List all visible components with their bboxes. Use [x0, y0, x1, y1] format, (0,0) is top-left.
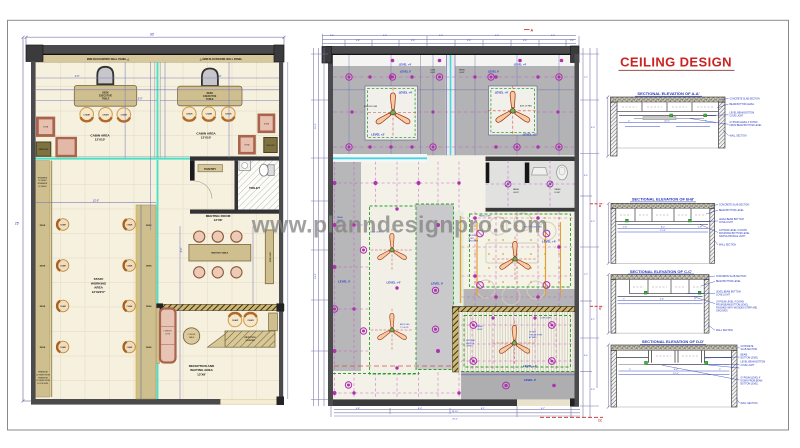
- svg-text:CHAIR: CHAIR: [225, 113, 232, 116]
- svg-text:LEVEL BEAM BOTTOM: LEVEL BEAM BOTTOM: [719, 218, 744, 221]
- svg-text:LEVEL 0': LEVEL 0': [488, 70, 499, 74]
- svg-text:GROOVES: GROOVES: [469, 241, 479, 243]
- svg-text:LIGHT: LIGHT: [555, 192, 562, 194]
- svg-text:LIGHT: LIGHT: [466, 346, 472, 348]
- svg-text:4'-6": 4'-6": [660, 299, 665, 301]
- svg-text:RECEPTION: RECEPTION: [244, 337, 256, 339]
- svg-text:CHAIR: CHAIR: [60, 305, 66, 308]
- svg-text:LEVEL +4': LEVEL +4': [542, 239, 556, 243]
- svg-text:LIGHT: LIGHT: [477, 329, 483, 331]
- svg-text:CHAIR: CHAIR: [60, 346, 66, 349]
- svg-text:12'X10': 12'X10': [201, 136, 212, 140]
- svg-text:12'-0": 12'-0": [673, 373, 679, 375]
- svg-text:3'-7": 3'-7": [591, 319, 596, 321]
- svg-text:BRACKET FAN: BRACKET FAN: [364, 105, 378, 108]
- svg-text:LIGHT: LIGHT: [469, 238, 475, 240]
- svg-text:10'-0": 10'-0": [315, 123, 317, 129]
- svg-text:SIDE UNIT: SIDE UNIT: [270, 251, 272, 262]
- svg-text:SECTIONAL ELEVATION OF D-D': SECTIONAL ELEVATION OF D-D': [642, 339, 704, 344]
- svg-text:CHAIR: CHAIR: [60, 264, 66, 267]
- svg-text:1'-8": 1'-8": [698, 227, 703, 229]
- svg-text:COVE LIGHT: COVE LIGHT: [741, 365, 756, 367]
- svg-text:ARCH LED: ARCH LED: [400, 323, 410, 326]
- svg-text:10' HEIGHT: 10' HEIGHT: [38, 180, 47, 182]
- svg-text:CONCRETE: CONCRETE: [741, 346, 754, 348]
- svg-text:DESK: DESK: [146, 347, 152, 349]
- svg-text:30': 30': [150, 33, 155, 37]
- svg-text:PANEL: PANEL: [513, 188, 520, 191]
- svg-text:SOFA: SOFA: [244, 144, 250, 147]
- svg-text:COVE LIGHT: COVE LIGHT: [730, 116, 745, 118]
- svg-text:BOTTOM LEVEL: BOTTOM LEVEL: [741, 357, 759, 359]
- svg-text:EXECUTIVE: EXECUTIVE: [99, 96, 112, 98]
- svg-text:3'-4": 3'-4": [584, 355, 589, 357]
- svg-text:DESK: DESK: [40, 347, 46, 349]
- svg-text:BOTTOM LEVEL: BOTTOM LEVEL: [741, 383, 759, 385]
- svg-text:TABLE: TABLE: [102, 98, 110, 101]
- svg-text:BEAM: BEAM: [741, 353, 748, 356]
- svg-text:LIGHT: LIGHT: [430, 72, 436, 74]
- svg-text:2'-6": 2'-6": [330, 35, 335, 37]
- svg-text:PROFILE: PROFILE: [466, 343, 475, 345]
- svg-text:7'-7": 7'-7": [584, 274, 589, 276]
- svg-text:www.planndesignpro.com: www.planndesignpro.com: [251, 212, 548, 238]
- svg-text:BEAM BOTTOM LEVEL: BEAM BOTTOM LEVEL: [730, 103, 755, 106]
- svg-text:5'-2": 5'-2": [591, 221, 596, 223]
- svg-text:FINISHED WITH WOODEN STRIP AND: FINISHED WITH WOODEN STRIP AND: [716, 306, 758, 309]
- svg-text:8'-1": 8'-1": [481, 408, 486, 410]
- svg-text:5'-0": 5'-0": [495, 35, 500, 37]
- svg-text:LIGHT: LIGHT: [513, 192, 520, 194]
- svg-text:4'-8": 4'-8": [356, 408, 361, 410]
- svg-text:PANEL: PANEL: [555, 188, 562, 191]
- svg-text:5'-0": 5'-0": [551, 35, 556, 37]
- svg-text:5'-6": 5'-6": [523, 40, 528, 42]
- svg-text:COVE LIGHT: COVE LIGHT: [540, 318, 552, 320]
- svg-text:PANEL: PANEL: [477, 325, 483, 328]
- svg-text:CHAIR: CHAIR: [127, 223, 133, 226]
- svg-text:22'-0": 22'-0": [664, 121, 670, 123]
- svg-text:LEVEL 0': LEVEL 0': [338, 279, 351, 283]
- svg-text:VERTICAL: VERTICAL: [466, 339, 475, 342]
- svg-text:4'-0": 4'-0": [591, 127, 596, 129]
- svg-text:HAVING PROFILE LIGHT: HAVING PROFILE LIGHT: [719, 235, 746, 238]
- svg-text:DOWN FROM BEAM: DOWN FROM BEAM: [741, 379, 763, 382]
- svg-text:CEILING DESIGN: CEILING DESIGN: [620, 55, 732, 70]
- svg-text:CHAIR: CHAIR: [102, 113, 109, 116]
- svg-text:WALL SECTION: WALL SECTION: [716, 329, 733, 332]
- svg-text:LEVEL +2': LEVEL +2': [371, 133, 385, 137]
- svg-text:T COLOR: T COLOR: [400, 327, 409, 329]
- svg-text:EXECUTIVE: EXECUTIVE: [203, 96, 216, 98]
- svg-text:CHAIR: CHAIR: [127, 305, 133, 308]
- svg-text:GYPSUM LEVEL 4' DOWN: GYPSUM LEVEL 4' DOWN: [716, 301, 744, 303]
- svg-text:B': B': [599, 307, 602, 311]
- svg-text:CHAIR: CHAIR: [232, 319, 239, 322]
- svg-text:CHAIR: CHAIR: [206, 113, 213, 116]
- svg-text:10' HEIGHT FROM: 10' HEIGHT FROM: [36, 380, 50, 382]
- svg-text:A: A: [531, 28, 534, 32]
- svg-text:CHAIR: CHAIR: [186, 113, 193, 116]
- svg-text:SLAB SECTION: SLAB SECTION: [741, 348, 758, 351]
- svg-text:BEAM BOTTOM LEVEL: BEAM BOTTOM LEVEL: [716, 280, 741, 283]
- svg-text:CONCRETE SLAB SECTION: CONCRETE SLAB SECTION: [730, 97, 761, 100]
- svg-text:6'-7": 6'-7": [541, 408, 546, 410]
- svg-text:GYPSUM LEVEL 4' DOWN: GYPSUM LEVEL 4' DOWN: [730, 122, 758, 124]
- svg-text:AXIS CE FAN: AXIS CE FAN: [520, 105, 532, 108]
- svg-text:CHAIR: CHAIR: [247, 319, 254, 322]
- svg-text:SOFA: SOFA: [165, 332, 171, 335]
- svg-text:LIGHT: LIGHT: [459, 72, 465, 74]
- svg-text:SIDE UNIT: SIDE UNIT: [266, 145, 274, 147]
- svg-text:LEVEL +2': LEVEL +2': [523, 133, 537, 137]
- svg-text:14'-6": 14'-6": [315, 273, 317, 279]
- svg-text:LEVEL +4': LEVEL +4': [399, 63, 412, 67]
- svg-text:SECTIONAL ELEVATION OF B-B': SECTIONAL ELEVATION OF B-B': [632, 197, 694, 202]
- svg-text:BEAM BOTTOM LEVEL: BEAM BOTTOM LEVEL: [719, 209, 744, 212]
- svg-text:LEVEL +4': LEVEL +4': [495, 90, 509, 94]
- svg-text:5'-0": 5'-0": [383, 35, 388, 37]
- svg-text:2'-6": 2'-6": [570, 40, 575, 42]
- svg-text:WALL SECTION: WALL SECTION: [741, 402, 758, 405]
- svg-text:LEVEL 0': LEVEL 0': [431, 281, 444, 285]
- svg-text:3 SEATER: 3 SEATER: [163, 330, 172, 333]
- svg-text:AT WALL: AT WALL: [529, 336, 537, 339]
- svg-text:LEVEL +4': LEVEL +4': [514, 63, 527, 67]
- svg-text:10' HEIGHT FROM: 10' HEIGHT FROM: [36, 374, 50, 376]
- svg-text:LEVEL +4': LEVEL +4': [399, 90, 413, 94]
- svg-text:12'-0": 12'-0": [93, 200, 99, 203]
- svg-text:COVE LIGHT: COVE LIGHT: [719, 222, 734, 224]
- svg-text:FROM BAM BOTTOM LEVEL: FROM BAM BOTTOM LEVEL: [719, 232, 750, 235]
- svg-text:25': 25': [15, 222, 20, 226]
- svg-text:9MM BLOCKWORK WALL PANEL △: 9MM BLOCKWORK WALL PANEL △: [87, 57, 130, 61]
- svg-text:GYPSUM LEVEL 4': GYPSUM LEVEL 4': [741, 377, 762, 379]
- svg-text:DESK: DESK: [40, 225, 46, 227]
- svg-text:THROW STRIP: THROW STRIP: [529, 334, 543, 336]
- svg-text:CONCRETE SLAB SECTION: CONCRETE SLAB SECTION: [719, 204, 750, 207]
- svg-text:LEVEL +4': LEVEL +4': [386, 280, 400, 284]
- svg-text:SOFA: SOFA: [264, 122, 270, 125]
- svg-text:LEVEL +4': LEVEL +4': [523, 364, 537, 368]
- svg-text:12'X10': 12'X10': [95, 138, 106, 142]
- svg-text:UP TAN: UP TAN: [529, 331, 536, 334]
- svg-text:LEVEL 0': LEVEL 0': [524, 378, 537, 382]
- svg-text:CHAIR: CHAIR: [60, 223, 66, 226]
- svg-text:CHAIR: CHAIR: [127, 346, 133, 349]
- svg-text:CHAIR: CHAIR: [127, 264, 133, 267]
- svg-text:11'-6": 11'-6": [660, 230, 666, 232]
- svg-text:CONCRETE SLAB SECTION: CONCRETE SLAB SECTION: [716, 275, 747, 278]
- svg-text:LEVEL BEAM BOTTOM: LEVEL BEAM BOTTOM: [741, 360, 766, 363]
- svg-text:COFFEE: COFFEE: [188, 334, 196, 336]
- svg-text:LEVEL 0': LEVEL 0': [400, 70, 411, 74]
- svg-text:DESK: DESK: [40, 266, 46, 268]
- svg-text:6'-0": 6'-0": [674, 369, 679, 371]
- svg-text:SECTIONAL ELEVATION OF C-C': SECTIONAL ELEVATION OF C-C': [630, 269, 692, 274]
- svg-text:COUNTER: COUNTER: [245, 340, 255, 342]
- svg-text:TABLE: TABLE: [189, 336, 196, 339]
- svg-text:LEVEL BEAM BOTTOM: LEVEL BEAM BOTTOM: [716, 290, 741, 293]
- svg-text:7'-7": 7'-7": [584, 77, 589, 79]
- svg-text:8'-0": 8'-0": [418, 408, 423, 410]
- svg-text:3'-4": 3'-4": [584, 175, 589, 177]
- svg-text:PANTRY: PANTRY: [204, 167, 216, 171]
- svg-text:TOILET: TOILET: [249, 186, 260, 190]
- svg-text:4'-0": 4'-0": [75, 75, 80, 78]
- svg-text:3'-5": 3'-5": [591, 389, 596, 391]
- svg-text:DESK: DESK: [146, 306, 152, 308]
- svg-text:MEETING TABLE: MEETING TABLE: [211, 252, 228, 255]
- svg-text:3'-2": 3'-2": [180, 247, 183, 252]
- svg-text:5'-6": 5'-6": [411, 40, 416, 42]
- svg-text:CHAIR: CHAIR: [121, 114, 128, 117]
- svg-text:DESK: DESK: [207, 93, 214, 95]
- svg-text:5'-6": 5'-6": [467, 40, 472, 42]
- svg-text:10' HEIGHT: 10' HEIGHT: [38, 186, 47, 188]
- svg-text:SOFA: SOFA: [43, 126, 49, 129]
- svg-text:DESK: DESK: [40, 306, 46, 308]
- svg-text:WALL SECTION: WALL SECTION: [719, 244, 736, 247]
- svg-text:12'X23'6": 12'X23'6": [92, 290, 106, 294]
- svg-text:△ 9MM BLOCKWORK WALL PANEL: △ 9MM BLOCKWORK WALL PANEL: [199, 57, 243, 61]
- svg-text:5'-6": 5'-6": [356, 40, 361, 42]
- svg-text:12'X8': 12'X8': [197, 372, 206, 376]
- svg-text:GYPSUM LEVEL 4' DOWN: GYPSUM LEVEL 4' DOWN: [719, 230, 747, 232]
- svg-text:WARDROBE: WARDROBE: [39, 148, 50, 151]
- svg-text:COVE LIGHT: COVE LIGHT: [716, 294, 731, 296]
- svg-text:DESK: DESK: [146, 225, 152, 227]
- svg-text:LEVEL BEAM BOTTOM: LEVEL BEAM BOTTOM: [730, 112, 755, 115]
- svg-text:FROM BEAM BOTTOM LEVEL: FROM BEAM BOTTOM LEVEL: [716, 303, 749, 306]
- svg-text:1'-8": 1'-8": [623, 227, 628, 229]
- svg-text:FLOOR LEVEL: FLOOR LEVEL: [38, 383, 49, 385]
- svg-text:12'X8': 12'X8': [214, 218, 223, 222]
- svg-text:DESK: DESK: [102, 93, 109, 95]
- svg-text:25'-5": 25'-5": [452, 419, 458, 421]
- svg-text:GROOVES: GROOVES: [716, 310, 728, 312]
- svg-text:5'-0": 5'-0": [439, 35, 444, 37]
- svg-text:8'-2": 8'-2": [661, 227, 666, 229]
- svg-text:DESK: DESK: [146, 266, 152, 268]
- svg-text:WALL SECTION: WALL SECTION: [730, 134, 747, 137]
- svg-text:18'-10": 18'-10": [452, 411, 459, 413]
- svg-text:3'-0": 3'-0": [138, 98, 143, 101]
- svg-text:SECTIONAL ELEVATION OF A-A': SECTIONAL ELEVATION OF A-A': [637, 91, 699, 96]
- svg-text:FROM BEAM BOTTOM LEVEL: FROM BEAM BOTTOM LEVEL: [730, 124, 763, 127]
- svg-text:CHAIR: CHAIR: [84, 113, 91, 116]
- svg-text:4'-0": 4'-0": [217, 75, 222, 78]
